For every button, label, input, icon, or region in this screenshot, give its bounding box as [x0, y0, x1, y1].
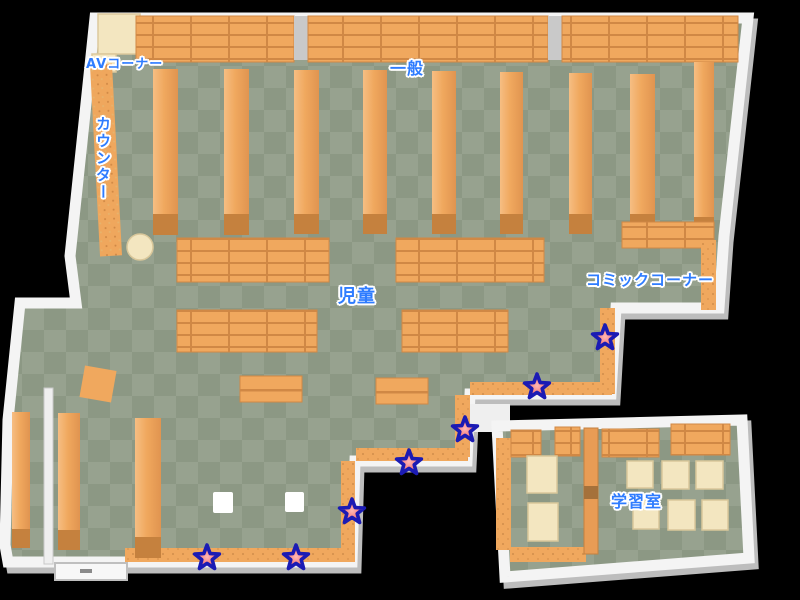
bookshelf-bank	[511, 430, 541, 457]
bookshelf	[294, 70, 319, 234]
study-desk	[662, 461, 689, 489]
comic-shelf	[622, 222, 714, 248]
low-bookshelf	[177, 238, 329, 282]
study-table	[527, 456, 557, 493]
low-bookshelf	[402, 310, 508, 352]
bookshelf	[224, 69, 249, 235]
bookshelf-bank	[308, 16, 548, 62]
bookshelf	[153, 69, 178, 235]
bench	[600, 308, 615, 394]
bookshelf-bank	[555, 427, 580, 456]
low-bookshelf	[177, 310, 317, 352]
label-counter: カウンター	[93, 116, 114, 201]
wall-bookshelf	[496, 438, 511, 550]
bookshelf	[12, 412, 30, 548]
door-handle	[80, 569, 92, 573]
study-desk	[668, 500, 695, 530]
bookshelf	[630, 74, 655, 234]
cushion	[213, 492, 233, 513]
wall-bookshelf	[694, 62, 714, 235]
bookshelf	[363, 70, 387, 234]
stool	[127, 234, 153, 260]
study-desk	[702, 500, 728, 530]
library-floor-map: AVコーナー カウンター 一般 児童 コミックコーナー 学習室	[0, 0, 800, 600]
bookshelf	[58, 413, 80, 550]
bookshelf-bank	[602, 429, 659, 457]
partition-wall	[584, 428, 598, 554]
low-bookshelf	[396, 238, 544, 282]
study-desk	[627, 461, 653, 488]
reading-table	[240, 376, 302, 402]
study-desk	[696, 461, 723, 489]
label-general-section: 一般	[390, 55, 424, 79]
entrance-door[interactable]	[55, 563, 127, 580]
label-children-section: 児童	[338, 282, 376, 308]
cushion	[285, 492, 304, 512]
floor-map-canvas	[0, 0, 800, 600]
bookshelf	[135, 418, 161, 558]
bookshelf-bank	[562, 16, 738, 62]
label-study-room: 学習室	[611, 488, 662, 512]
wall-gap	[548, 16, 562, 60]
bookshelf	[432, 71, 456, 234]
wall-gap	[294, 16, 308, 60]
study-table	[528, 503, 558, 541]
bookshelf-bank	[671, 424, 730, 455]
divider-wall	[44, 388, 53, 564]
bookshelf	[500, 72, 523, 234]
floor-mat	[79, 365, 116, 402]
label-comic-corner: コミックコーナー	[586, 269, 714, 290]
bookshelf	[569, 73, 592, 234]
label-av-corner: AVコーナー	[86, 53, 163, 72]
reading-table	[376, 378, 428, 404]
av-corner-shelf	[98, 14, 140, 54]
wall-bookshelf	[510, 547, 586, 562]
